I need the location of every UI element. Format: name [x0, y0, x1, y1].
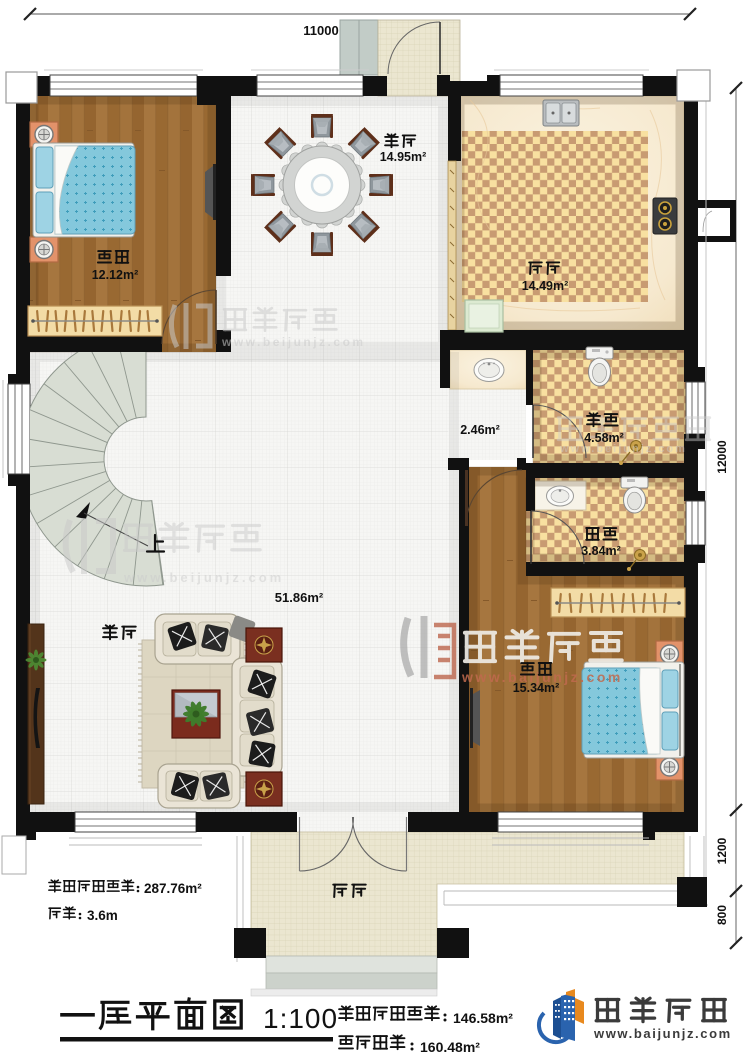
svg-text:www.baijunjz.com: www.baijunjz.com — [593, 1026, 732, 1041]
svg-text:12.12m²: 12.12m² — [92, 268, 139, 282]
svg-text:www.beijunjz.com: www.beijunjz.com — [123, 570, 284, 585]
svg-text:11000: 11000 — [303, 23, 338, 38]
svg-text:2.46m²: 2.46m² — [460, 423, 500, 437]
svg-text:4.58m²: 4.58m² — [584, 431, 624, 445]
svg-text:1200: 1200 — [715, 837, 729, 864]
svg-text:146.58m²: 146.58m² — [453, 1010, 513, 1026]
svg-text:15.34m²: 15.34m² — [513, 681, 560, 695]
svg-text:160.48m²: 160.48m² — [420, 1039, 480, 1055]
svg-text:12000: 12000 — [715, 440, 729, 474]
svg-text:14.49m²: 14.49m² — [522, 279, 569, 293]
svg-text:3.84m²: 3.84m² — [581, 544, 621, 558]
svg-text:14.95m²: 14.95m² — [380, 150, 427, 164]
svg-text:51.86m²: 51.86m² — [275, 590, 324, 605]
svg-text:www.beijunjz.com: www.beijunjz.com — [221, 335, 366, 349]
svg-text:3.6m: 3.6m — [87, 908, 118, 923]
svg-text:1:100: 1:100 — [263, 1003, 338, 1034]
svg-text:287.76m²: 287.76m² — [144, 881, 202, 896]
svg-text:800: 800 — [715, 905, 729, 925]
